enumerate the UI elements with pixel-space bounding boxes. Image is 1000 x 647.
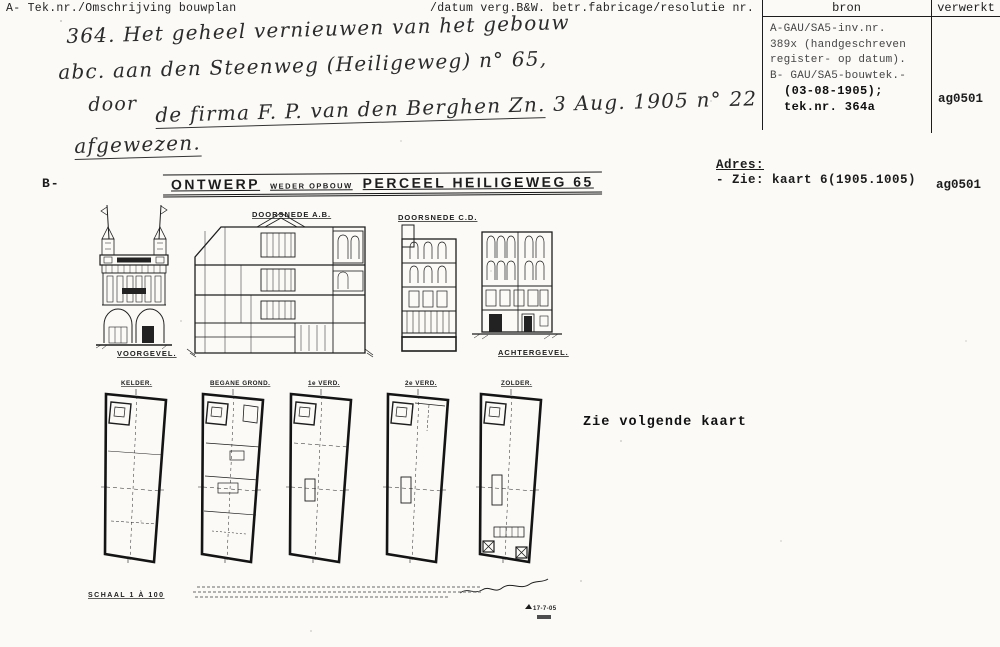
header-left: A- Tek.nr./Omschrijving bouwplan [6, 2, 236, 15]
bron-line-bold: (03-08-1905); [770, 84, 906, 100]
plan-begane-grond [198, 389, 263, 563]
adres-verwerkt: ag0501 [936, 178, 981, 192]
handwriting-firma: de firma F. P. van den Berghen Zn. [155, 92, 546, 129]
drawing-title-word2: WEDER OPBOUW [270, 181, 353, 191]
label-voorgevel: VOORGEVEL. [117, 349, 177, 358]
table-left-rule [762, 0, 763, 130]
handwriting-line-3: door [88, 93, 138, 116]
column-header-bron: bron [762, 1, 931, 15]
fine-print-line [195, 596, 450, 598]
plan-kelder [101, 389, 166, 563]
label-achtergevel: ACHTERGEVEL. [498, 348, 569, 357]
voorgevel-elevation [96, 205, 172, 349]
bron-line: 389x (handgeschreven [770, 38, 906, 54]
paper-speckles [60, 20, 62, 22]
handwriting-line-1: 364. Het geheel vernieuwen van het gebou… [66, 10, 570, 48]
table-header-rule [762, 16, 1000, 17]
label-doorsnede-cd: DOORSNEDE C.D. [398, 213, 477, 222]
doorsnede-cd-section [402, 225, 456, 351]
blueprint-drawing: VOORGEVEL. DOORSNEDE A.B. DOORSNEDE C.D.… [55, 195, 585, 625]
small-stamp-blob [537, 615, 551, 619]
table-divider-rule [931, 0, 932, 133]
column-header-verwerkt: verwerkt [932, 1, 1000, 15]
bron-line: B- GAU/SA5-bouwtek.- [770, 69, 906, 85]
bron-line: register- op datum). [770, 53, 906, 69]
handwriting-line-2: abc. aan den Steenweg (Heiligeweg) n° 65… [58, 46, 548, 84]
bron-line-bold: tek.nr. 364a [770, 100, 906, 116]
archive-card: A- Tek.nr./Omschrijving bouwplan /datum … [0, 0, 1000, 647]
label-begane-grond: BEGANE GROND. [210, 380, 270, 387]
fine-print-line [193, 591, 483, 593]
adres-value: - Zie: kaart 6(1905.1005) [716, 173, 916, 187]
label-kelder: KELDER. [121, 380, 152, 387]
bron-line: A-GAU/SA5-inv.nr. [770, 22, 906, 38]
plan-zolder [476, 389, 541, 563]
section-b-label: B- [42, 176, 60, 191]
drawing-title-word1: ONTWERP [171, 176, 260, 193]
achtergevel-elevation [472, 232, 562, 339]
drawing-title-word3: PERCEEL HEILIGEWEG 65 [363, 174, 594, 192]
plan-1e-verd [286, 389, 351, 563]
label-zolder: ZOLDER. [501, 380, 532, 387]
adres-label: Adres: [716, 158, 764, 172]
doorsnede-ab-section [187, 213, 373, 357]
fine-print-line [197, 586, 482, 588]
label-1e-verd: 1e VERD. [308, 380, 340, 387]
label-doorsnede-ab: DOORSNEDE A.B. [252, 210, 331, 219]
handwriting-line-5: afgewezen. [74, 130, 201, 160]
stamp-mark [525, 604, 532, 609]
scale-note: SCHAAL 1 À 100 [88, 590, 165, 599]
handwriting-line-4: de firma F. P. van den Berghen Zn. 3 Aug… [155, 86, 758, 127]
label-2e-verd: 2e VERD. [405, 380, 437, 387]
handwriting-date: 3 Aug. 1905 n° 22 [545, 86, 757, 116]
plan-2e-verd [383, 389, 448, 563]
bron-cell: A-GAU/SA5-inv.nr. 389x (handgeschreven r… [770, 22, 906, 115]
note-zie-volgende-kaart: Zie volgende kaart [583, 415, 747, 430]
verwerkt-cell: ag0501 [938, 92, 983, 106]
date-mark: 17-7-05 [533, 606, 557, 612]
drawing-title: ONTWERP WEDER OPBOUW PERCEEL HEILIGEWEG … [163, 171, 602, 197]
